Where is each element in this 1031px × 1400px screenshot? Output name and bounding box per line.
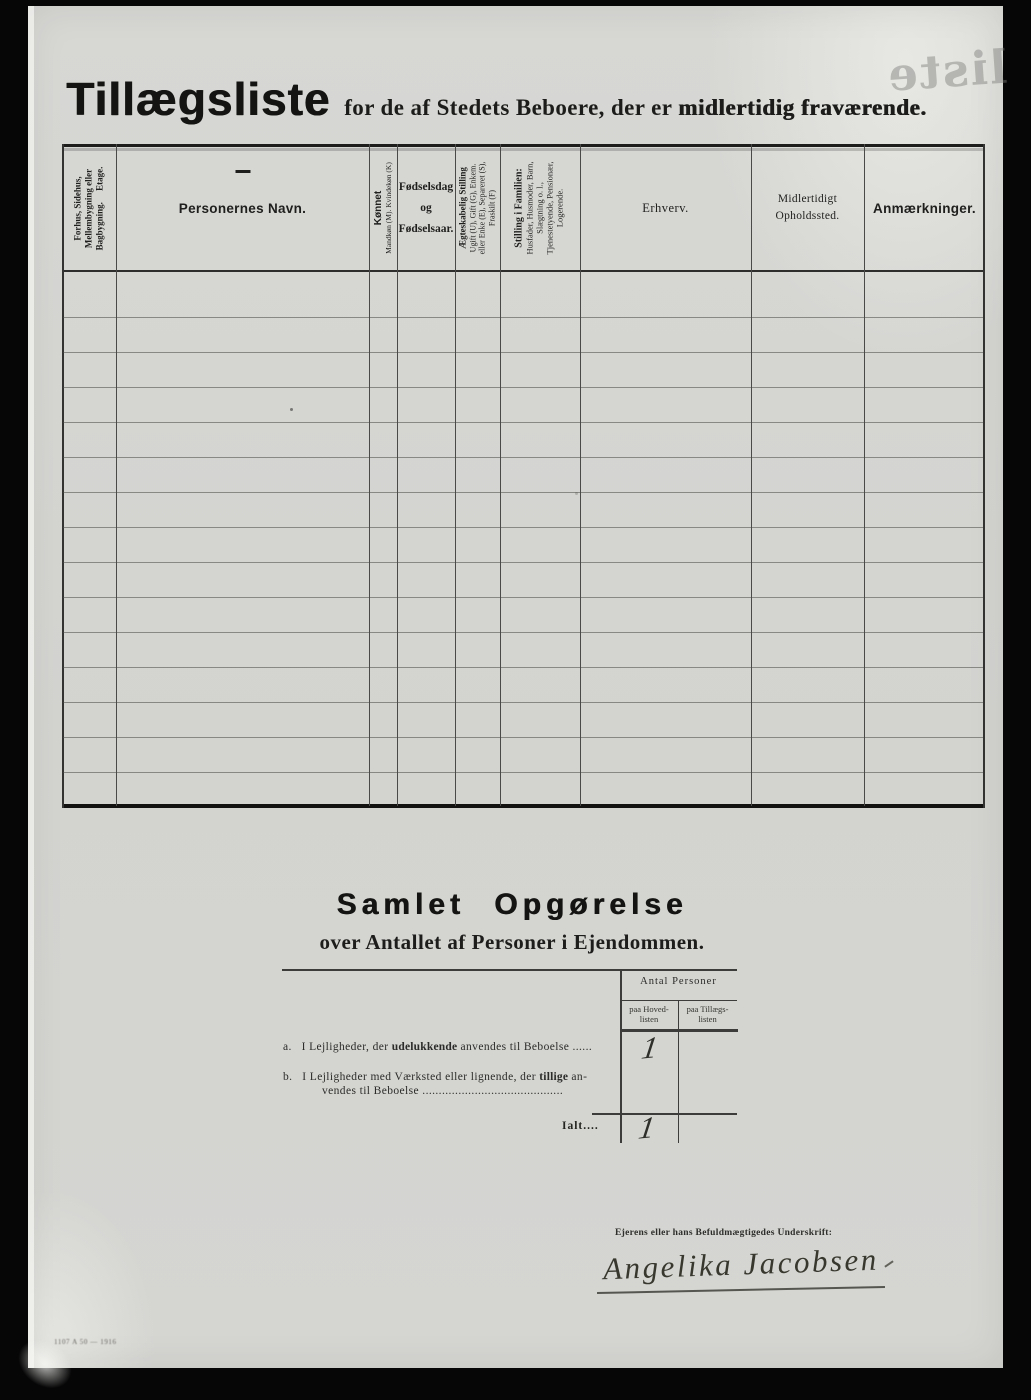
- table-row: [63, 668, 983, 703]
- summary-col-hovedlisten: paa Hoved- listen: [621, 1004, 677, 1024]
- scan-edge-highlight: [28, 6, 34, 1368]
- form-subtitle: for de af Stedets Beboere, der er midler…: [344, 95, 926, 121]
- table-row: [63, 738, 983, 773]
- table-rows: [63, 272, 983, 804]
- printer-mark: 1107 A 50 — 1916: [54, 1338, 117, 1346]
- header-marital-status: Ægteskabelig Stilling Ugift (U), Gift (G…: [455, 146, 500, 270]
- table-row: [63, 423, 983, 458]
- summary-rule-thick: [620, 1029, 738, 1032]
- form-title: Tillægsliste: [66, 72, 330, 126]
- table-row: [63, 598, 983, 633]
- summary-row-b: b. I Lejligheder med Værksted eller lign…: [283, 1071, 628, 1097]
- header-remarks: Anmærkninger.: [864, 146, 985, 270]
- table-row: [63, 633, 983, 668]
- header-name: Personernes Navn.: [116, 146, 369, 270]
- table-row: [63, 703, 983, 738]
- signature-label: Ejerens eller hans Befuldmægtigedes Unde…: [615, 1228, 865, 1238]
- table-row: [63, 563, 983, 598]
- header-family-position: Stilling i Familien: Husfader, Husmoder,…: [500, 146, 580, 270]
- summary-heading: Samlet Opgørelse: [162, 888, 862, 922]
- header-sex: Kønnet Mandkøn (M). Kvindekøn (K): [369, 146, 397, 270]
- header-birthdate: Fødselsdag og Fødselsaar.: [397, 146, 455, 270]
- summary-rule-top: [282, 969, 737, 971]
- table-row: [63, 318, 983, 353]
- table-row: [63, 493, 983, 528]
- table-bottom-border: [62, 804, 985, 808]
- table-row: [63, 353, 983, 388]
- summary-subheading: over Antallet af Personer i Ejendommen.: [162, 930, 862, 955]
- table-row: [63, 528, 983, 563]
- summary-row-a: a. I Lejligheder, der udelukkende anvend…: [283, 1041, 623, 1053]
- summary-vline-left: [620, 971, 622, 1143]
- summary-rule-total: [592, 1113, 737, 1115]
- header-dash: [235, 170, 250, 173]
- table-row: [63, 388, 983, 423]
- table-row: [63, 272, 983, 318]
- table-row: [63, 773, 983, 804]
- form-title-bar: Tillægsliste for de af Stedets Beboere, …: [66, 72, 976, 126]
- summary-count-header: Antal Personer: [620, 976, 737, 987]
- summary-col-tillaegslisten: paa Tillægs- listen: [679, 1004, 736, 1024]
- header-occupation: Erhverv.: [580, 146, 751, 270]
- header-building: Forhus, Sidehus, Mellembygning eller Bag…: [62, 146, 116, 270]
- header-temporary-residence: Midlertidigt Opholdssted.: [751, 146, 864, 270]
- summary-total-label: Ialt....: [562, 1120, 599, 1132]
- table-row: [63, 458, 983, 493]
